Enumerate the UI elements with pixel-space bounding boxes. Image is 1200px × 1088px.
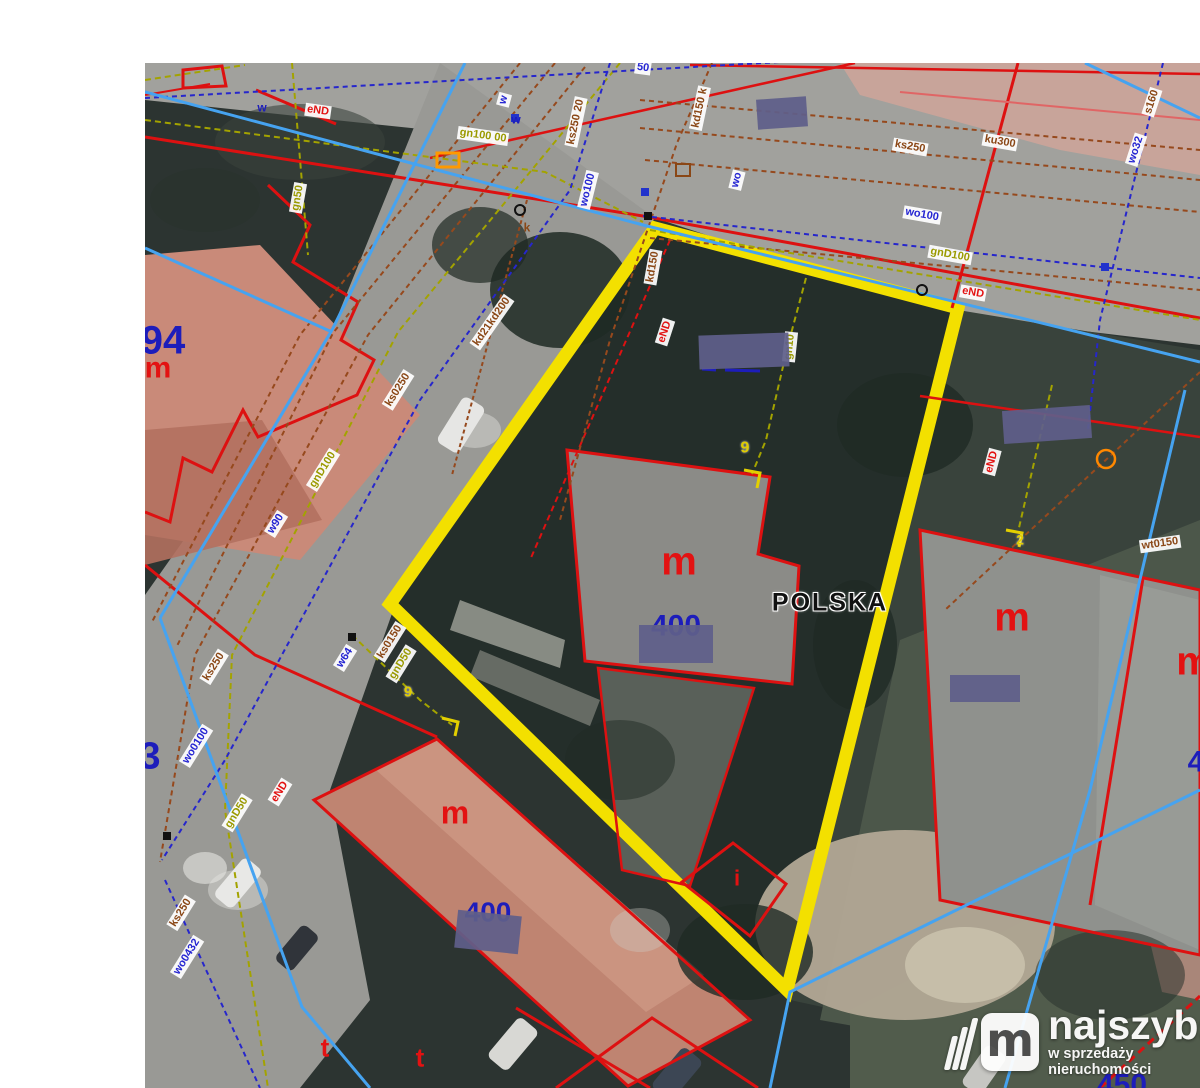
najszybsi-watermark: m najszybsi w sprzedaży nieruchomości — [948, 1005, 1200, 1078]
logo-letter: m — [986, 1017, 1034, 1063]
cadastral-map: eNDgn100 0050gn50wks250 20kd150 kwo100wo… — [145, 63, 1200, 1088]
screenshot-stage: eNDgn100 0050gn50wks250 20kd150 kwo100wo… — [0, 0, 1200, 1088]
map-canvas — [145, 63, 1200, 1088]
watermark-brand: najszybsi — [1048, 1005, 1200, 1045]
najszybsi-logo-icon: m — [981, 1013, 1039, 1071]
watermark-tagline: w sprzedaży nieruchomości — [1048, 1046, 1200, 1078]
watermark-bars-icon — [948, 1014, 972, 1070]
